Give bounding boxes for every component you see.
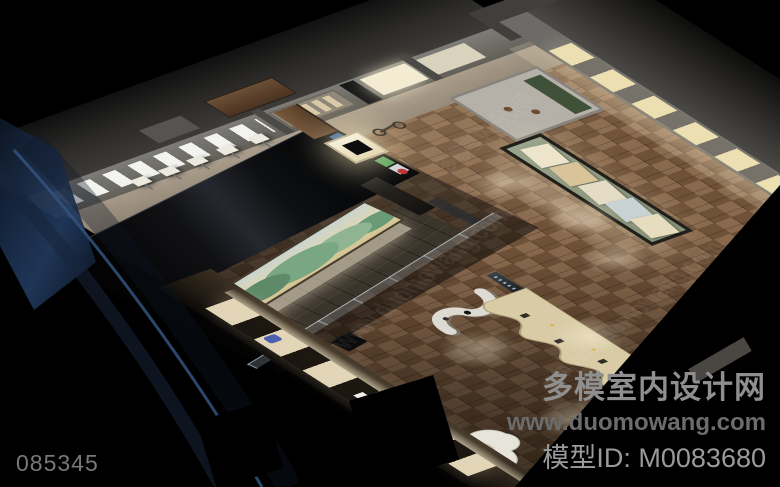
watermark-model-id: 模型ID: M0083680 xyxy=(507,444,766,472)
watermark: 多模室内设计网 www.duomowang.com 模型ID: M0083680 xyxy=(507,372,766,472)
watermark-site-url: www.duomowang.com xyxy=(507,410,766,435)
watermark-site-name: 多模室内设计网 xyxy=(507,372,766,405)
image-code: 085345 xyxy=(16,450,99,477)
render-canvas: www.duomowang.com www.duomowang.com 多模室内… xyxy=(0,0,780,487)
